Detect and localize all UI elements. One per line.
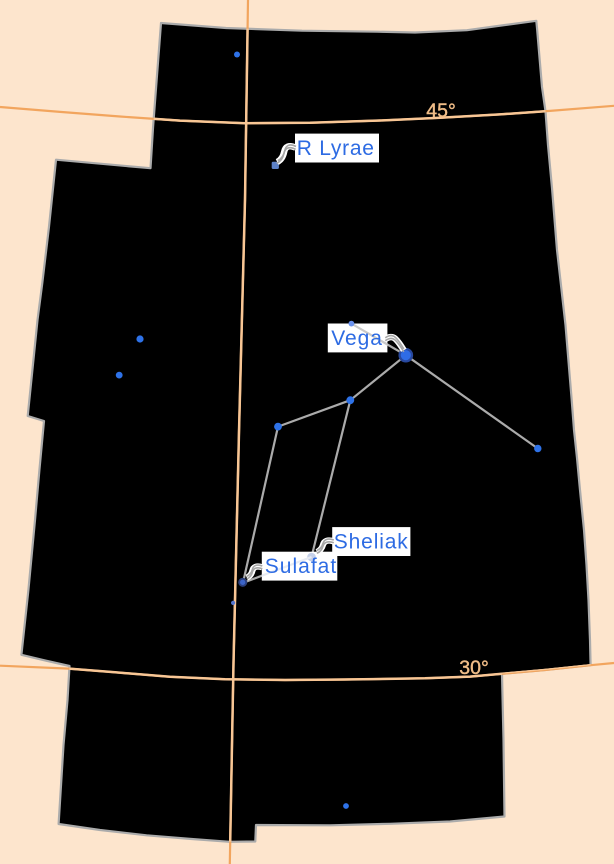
svg-text:Vega: Vega <box>331 327 383 350</box>
svg-text:Sulafat: Sulafat <box>265 555 337 578</box>
svg-text:30°: 30° <box>459 657 489 679</box>
svg-text:Sheliak: Sheliak <box>334 530 409 553</box>
svg-text:45°: 45° <box>426 100 456 122</box>
svg-text:R Lyrae: R Lyrae <box>297 137 375 160</box>
